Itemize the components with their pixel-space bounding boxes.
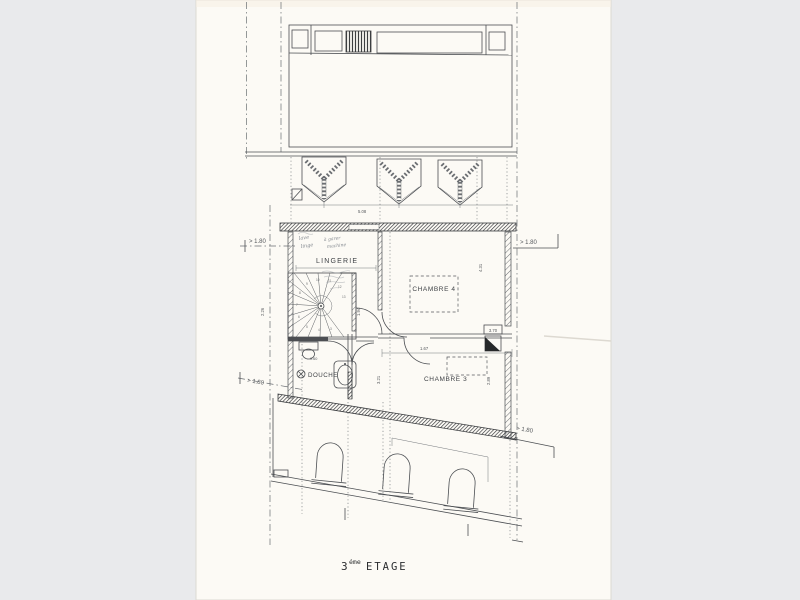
clearance-top-right: > 1.80: [520, 240, 538, 246]
scanned-floor-plan-page: 5.08 > 1.80 > 1.80 > 1.80 > 1.80: [0, 0, 800, 600]
paper-sheet: [196, 0, 611, 600]
partition-douche-chambre3: [348, 372, 352, 399]
hatched-vent-panel: [346, 31, 371, 52]
paper-top-tint: [196, 0, 611, 7]
room-label-lingerie: LINGERIE: [316, 258, 358, 265]
svg-text:9: 9: [306, 282, 308, 286]
stair-bottom-wall: [288, 337, 328, 341]
dimension-douche-fixture: 0.60: [310, 357, 317, 361]
floor-plan-drawing: 5.08 > 1.80 > 1.80 > 1.80 > 1.80: [0, 0, 800, 600]
east-wall-upper: [505, 232, 511, 326]
svg-text:4: 4: [318, 328, 320, 332]
east-wall-lower: [505, 352, 511, 438]
dimension-chambre4-height: 4.31: [478, 263, 483, 272]
title-word: ETAGE: [366, 561, 408, 573]
dimension-chambre3-right: 2.89: [486, 376, 491, 385]
dimension-chambre3-width: 1.67: [420, 346, 429, 351]
clearance-top-left: > 1.80: [249, 239, 267, 245]
partition-lingerie-chambre4: [378, 232, 382, 310]
dimension-stair-depth: 1.94: [356, 307, 361, 316]
title-floor-number: 3: [341, 560, 348, 573]
svg-text:5: 5: [306, 325, 308, 329]
room-label-chambre3: CHAMBRE 3: [424, 376, 467, 383]
svg-text:8: 8: [299, 291, 301, 295]
svg-text:13: 13: [342, 295, 346, 299]
svg-text:10: 10: [316, 278, 320, 282]
room-label-chambre4: CHAMBRE 4: [412, 286, 455, 293]
svg-text:6: 6: [298, 315, 300, 319]
dimension-chambre3-depth: 3.21: [376, 375, 381, 384]
title-superscript: éme: [349, 558, 361, 566]
svg-text:7: 7: [296, 303, 298, 307]
room-label-douche: DOUCHE: [308, 372, 338, 379]
svg-text:12: 12: [338, 285, 342, 289]
duct-label: 3.70: [489, 328, 498, 333]
dimension-left-height: 2.26: [260, 307, 265, 316]
dimension-lingerie-width: 5.08: [358, 209, 367, 214]
svg-text:3: 3: [330, 327, 332, 331]
north-wall-band: [280, 223, 516, 231]
